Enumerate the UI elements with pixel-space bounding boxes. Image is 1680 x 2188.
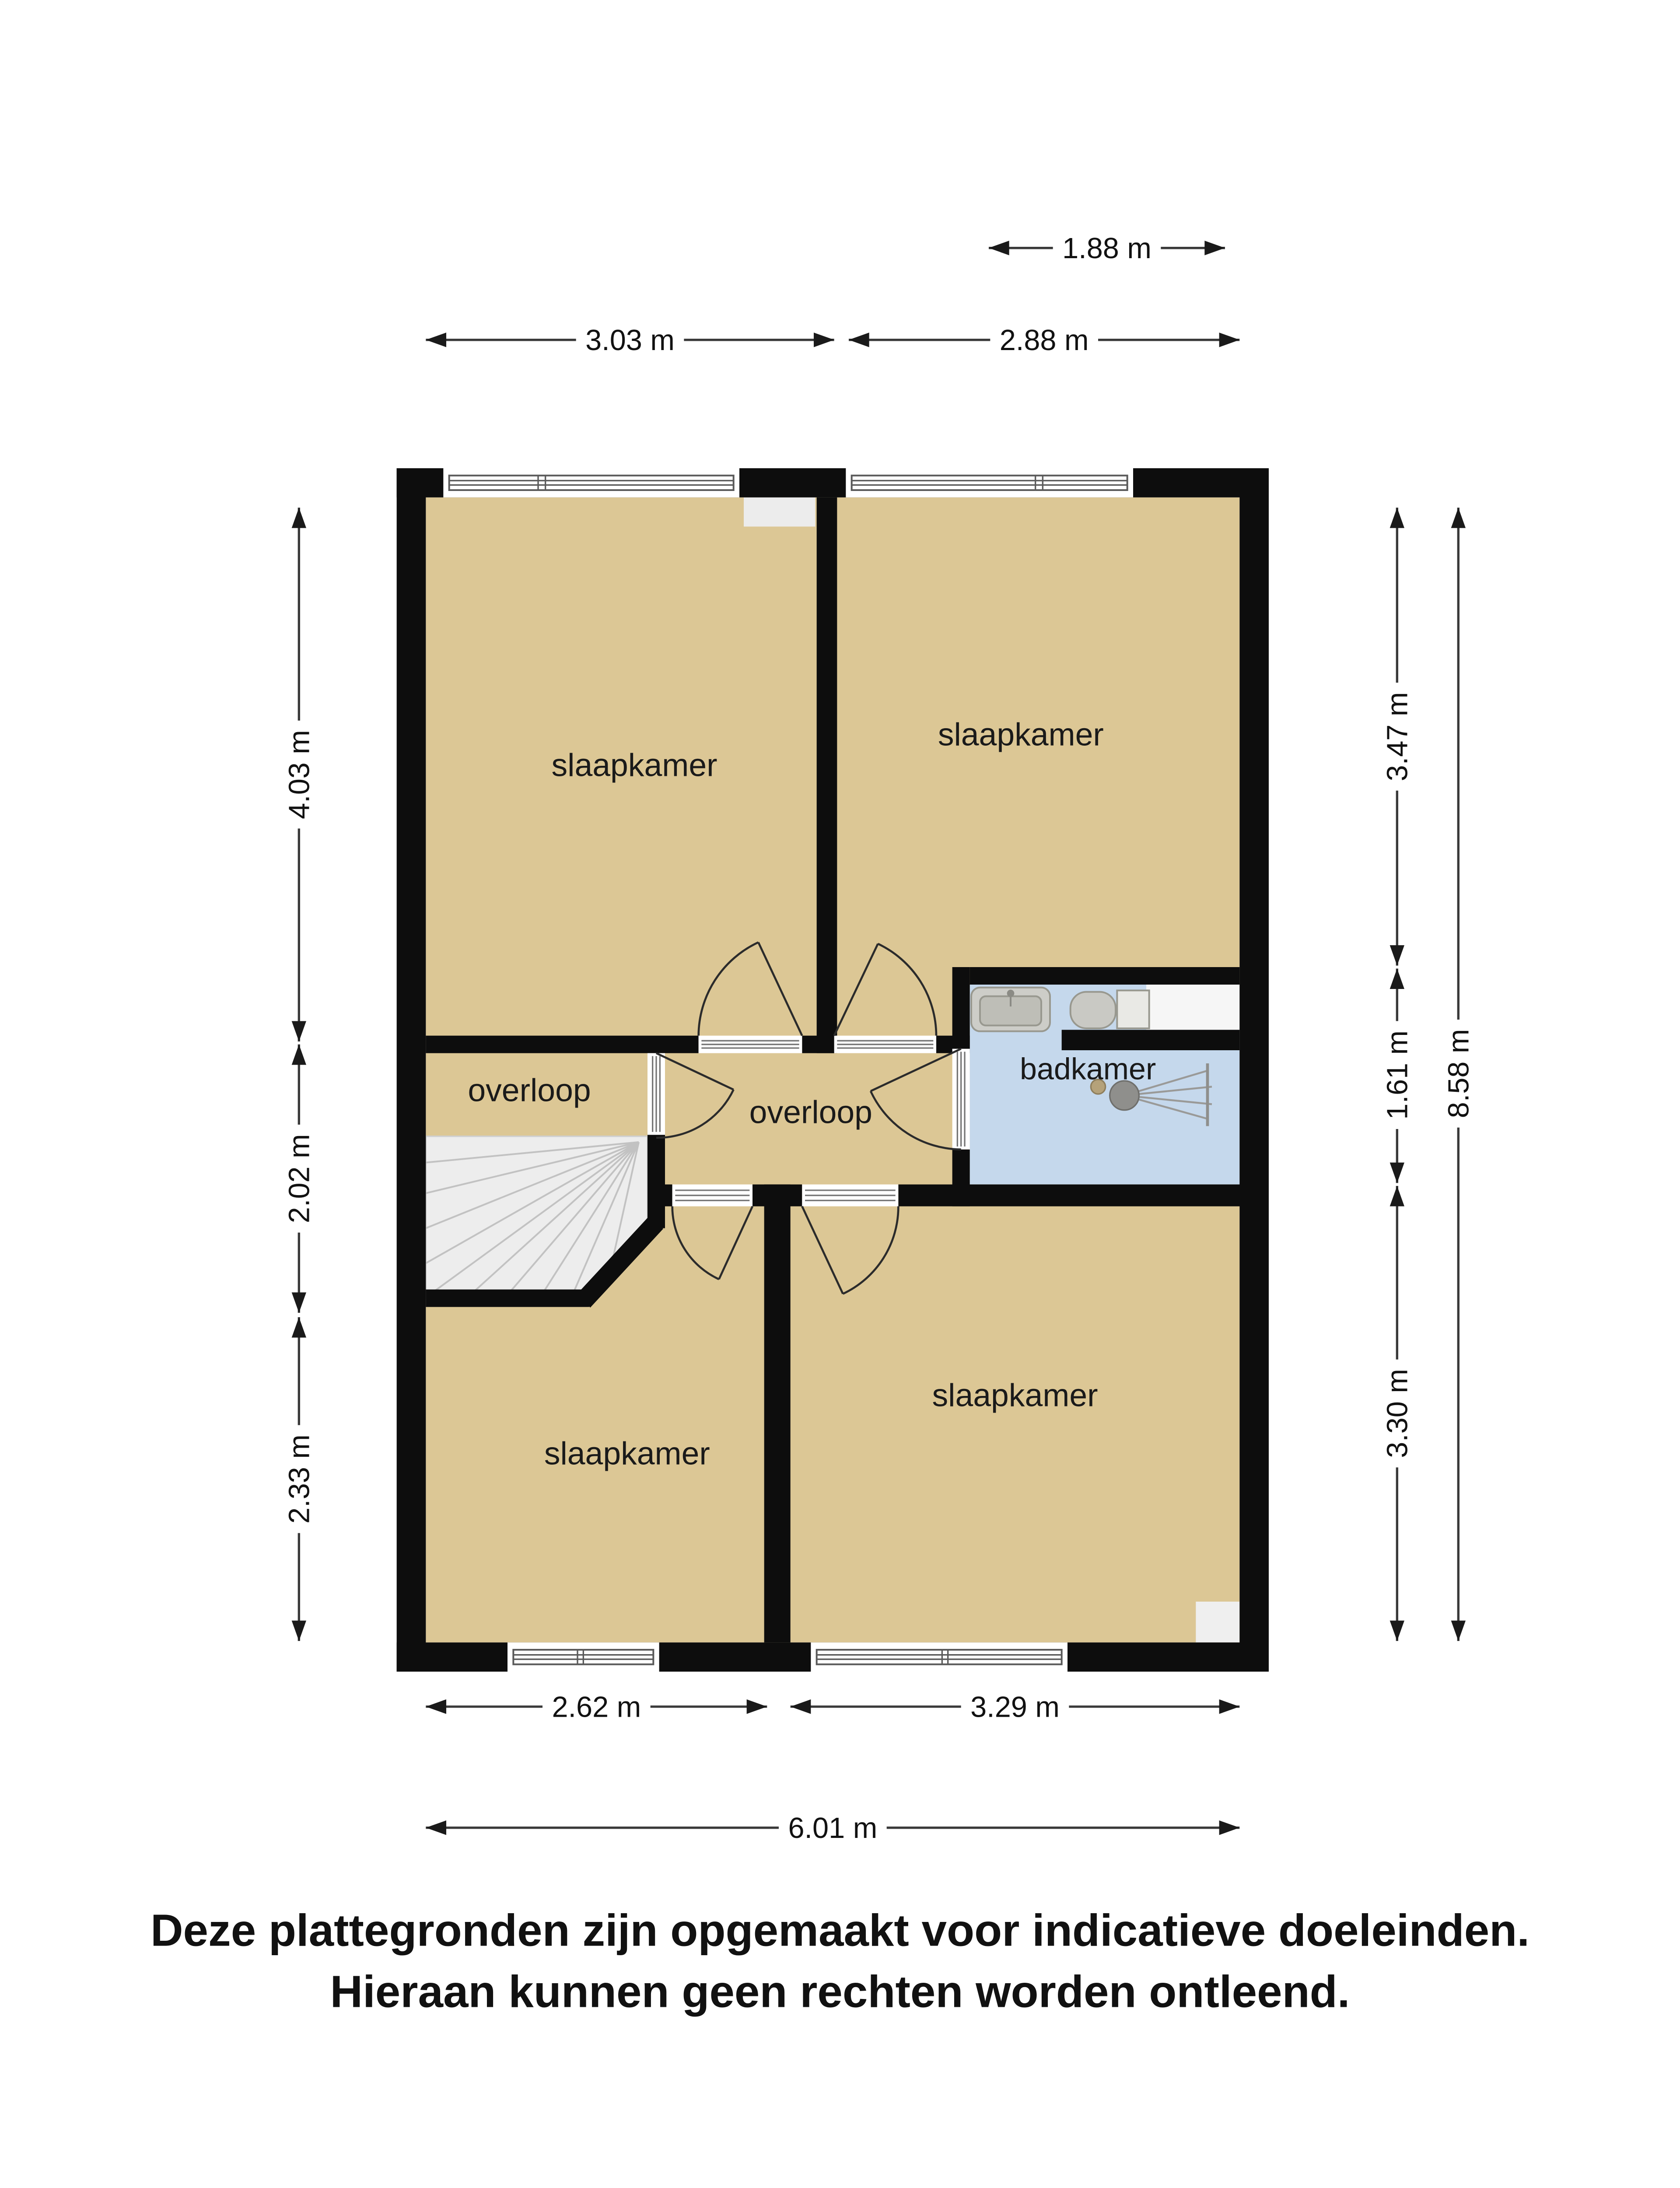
- wall-bathroom-stub: [1062, 1030, 1240, 1050]
- room-label-slaapkamer-bottom-right: slaapkamer: [932, 1377, 1098, 1413]
- dim-label-total-width: 6.01 m: [788, 1812, 877, 1844]
- dim-label-bottom-left-width: 2.62 m: [552, 1691, 641, 1723]
- dimension-total-width: 6.01 m: [426, 1807, 1239, 1848]
- dim-label-bathroom-width: 1.88 m: [1062, 232, 1151, 265]
- room-label-slaapkamer-top-left: slaapkamer: [551, 747, 717, 783]
- disclaimer-line-1: Deze plattegronden zijn opgemaakt voor i…: [150, 1905, 1529, 1956]
- wall-stairs-bottom: [426, 1290, 589, 1307]
- dimension-top-right-width: 2.88 m: [849, 319, 1239, 360]
- window-top-right: [846, 468, 1133, 498]
- dimension-left-height-middle: 2.02 m: [279, 1045, 319, 1313]
- dim-label-left-height-top: 4.03 m: [283, 730, 316, 819]
- window-bottom-left: [507, 1642, 659, 1672]
- room-label-slaapkamer-bottom-left: slaapkamer: [544, 1436, 710, 1472]
- dimension-top-left-width: 3.03 m: [426, 319, 834, 360]
- dim-label-top-left-width: 3.03 m: [585, 324, 675, 357]
- room-label-overloop-center: overloop: [749, 1094, 872, 1130]
- outer-wall-right: [1239, 468, 1269, 1672]
- dim-label-total-height: 8.58 m: [1443, 1029, 1475, 1118]
- dimension-right-height-top: 3.47 m: [1377, 508, 1417, 966]
- dimension-bottom-left-width: 2.62 m: [426, 1686, 767, 1727]
- dim-label-left-height-bottom: 2.33 m: [283, 1434, 316, 1524]
- outer-wall-left: [397, 468, 426, 1672]
- dimension-bathroom-width: 1.88 m: [989, 228, 1225, 268]
- floor-plan-page: slaapkamer slaapkamer slaapkamer slaapka…: [0, 0, 1680, 2188]
- wall-landing-top-a: [426, 1036, 698, 1053]
- dimension-left-height-top: 4.03 m: [279, 508, 319, 1041]
- wall-bathroom-left-a: [952, 967, 970, 1049]
- wall-landing-top-b: [802, 1036, 834, 1053]
- dim-label-bottom-right-width: 3.29 m: [970, 1691, 1060, 1723]
- dimension-right-height-middle: 1.61 m: [1377, 968, 1417, 1183]
- sink: [971, 988, 1050, 1031]
- dimension-right-height-bottom: 3.30 m: [1377, 1186, 1417, 1641]
- dimension-total-height: 8.58 m: [1438, 508, 1479, 1641]
- dim-label-top-right-width: 2.88 m: [1000, 324, 1089, 357]
- wall-stairs-right: [647, 1126, 665, 1228]
- window-top-left: [443, 468, 739, 498]
- dim-label-right-height-bottom: 3.30 m: [1382, 1369, 1414, 1458]
- chimney-notch: [744, 498, 815, 527]
- room-label-badkamer: badkamer: [1020, 1052, 1156, 1086]
- dimension-left-height-bottom: 2.33 m: [279, 1317, 319, 1641]
- dimension-bottom-right-width: 3.29 m: [791, 1686, 1240, 1727]
- bathroom-niche: [1146, 985, 1239, 1030]
- toilet: [1071, 990, 1149, 1028]
- room-label-overloop-left: overloop: [468, 1073, 591, 1108]
- disclaimer-line-2: Hieraan kunnen geen rechten worden ontle…: [330, 1966, 1350, 2017]
- corner-notch: [1196, 1602, 1239, 1642]
- room-label-slaapkamer-top-right: slaapkamer: [938, 716, 1104, 752]
- dim-label-right-height-middle: 1.61 m: [1382, 1031, 1414, 1120]
- window-bottom-right: [811, 1642, 1067, 1672]
- dim-label-left-height-middle: 2.02 m: [283, 1134, 316, 1223]
- dim-label-right-height-top: 3.47 m: [1382, 692, 1414, 781]
- wall-landing-bottom-c: [898, 1185, 1269, 1206]
- floor-plan-svg: slaapkamer slaapkamer slaapkamer slaapka…: [0, 0, 1680, 2188]
- wall-bathroom-top: [970, 967, 1240, 985]
- wall-between-top-bedrooms: [817, 498, 837, 1053]
- wall-between-bottom-bedrooms: [764, 1185, 791, 1643]
